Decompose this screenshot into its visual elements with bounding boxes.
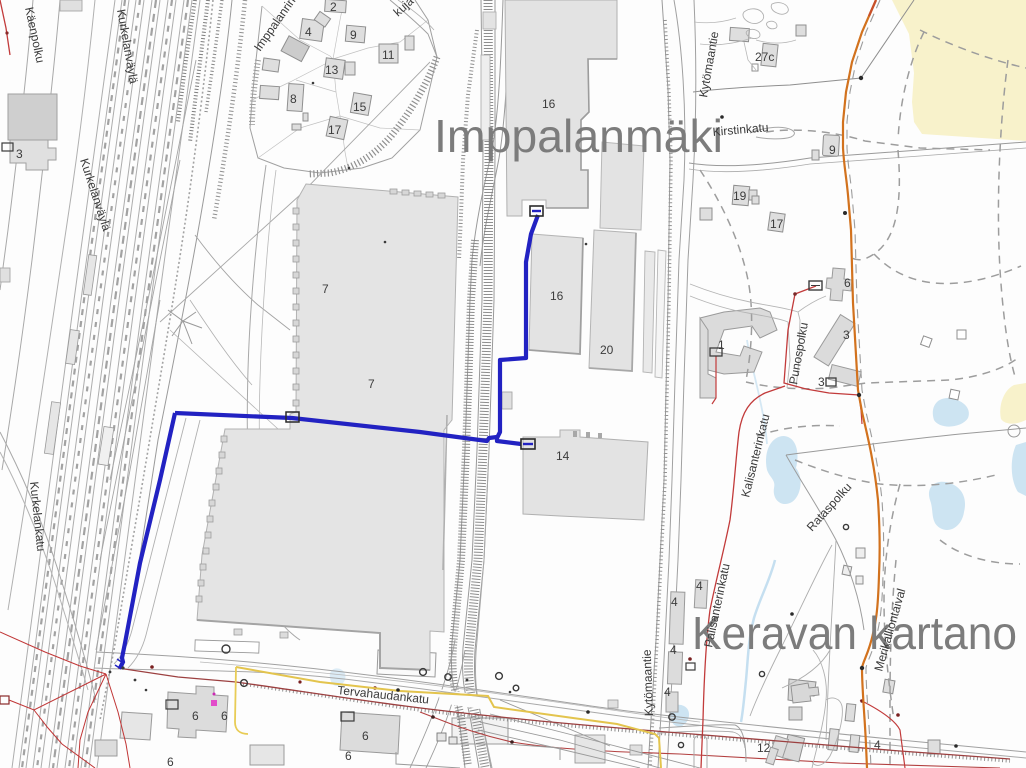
svg-text:2: 2: [330, 0, 337, 14]
svg-text:16: 16: [542, 97, 556, 111]
svg-text:9: 9: [829, 143, 836, 157]
svg-text:4: 4: [696, 579, 703, 593]
svg-text:Keravan kartano: Keravan kartano: [692, 607, 1017, 659]
svg-text:17: 17: [328, 123, 342, 137]
svg-text:16: 16: [550, 289, 564, 303]
svg-text:13: 13: [325, 63, 339, 77]
svg-text:7: 7: [368, 377, 375, 391]
svg-text:4: 4: [670, 643, 677, 657]
svg-text:9: 9: [350, 28, 357, 42]
svg-text:4: 4: [664, 685, 671, 699]
svg-text:7: 7: [322, 282, 329, 296]
svg-text:3: 3: [818, 375, 825, 389]
svg-text:15: 15: [353, 100, 367, 114]
svg-text:27c: 27c: [755, 50, 774, 64]
svg-text:4: 4: [305, 25, 312, 39]
svg-text:6: 6: [844, 276, 851, 290]
svg-text:4: 4: [874, 738, 881, 752]
svg-text:6: 6: [362, 729, 369, 743]
svg-text:3: 3: [16, 147, 23, 161]
svg-text:1: 1: [718, 338, 725, 352]
svg-text:3: 3: [843, 328, 850, 342]
svg-text:6: 6: [221, 709, 228, 723]
svg-text:20: 20: [600, 343, 614, 357]
svg-text:6: 6: [192, 709, 199, 723]
svg-text:Kytömaantie: Kytömaantie: [640, 649, 656, 716]
svg-text:8: 8: [290, 92, 297, 106]
svg-text:4: 4: [671, 595, 678, 609]
svg-text:19: 19: [733, 189, 747, 203]
svg-text:6: 6: [167, 755, 174, 768]
svg-text:Imppalanmäki: Imppalanmäki: [434, 110, 723, 162]
svg-text:11: 11: [382, 48, 395, 62]
svg-text:14: 14: [556, 449, 570, 463]
svg-text:6: 6: [345, 749, 352, 763]
svg-text:12: 12: [757, 741, 771, 755]
svg-text:17: 17: [770, 217, 784, 231]
